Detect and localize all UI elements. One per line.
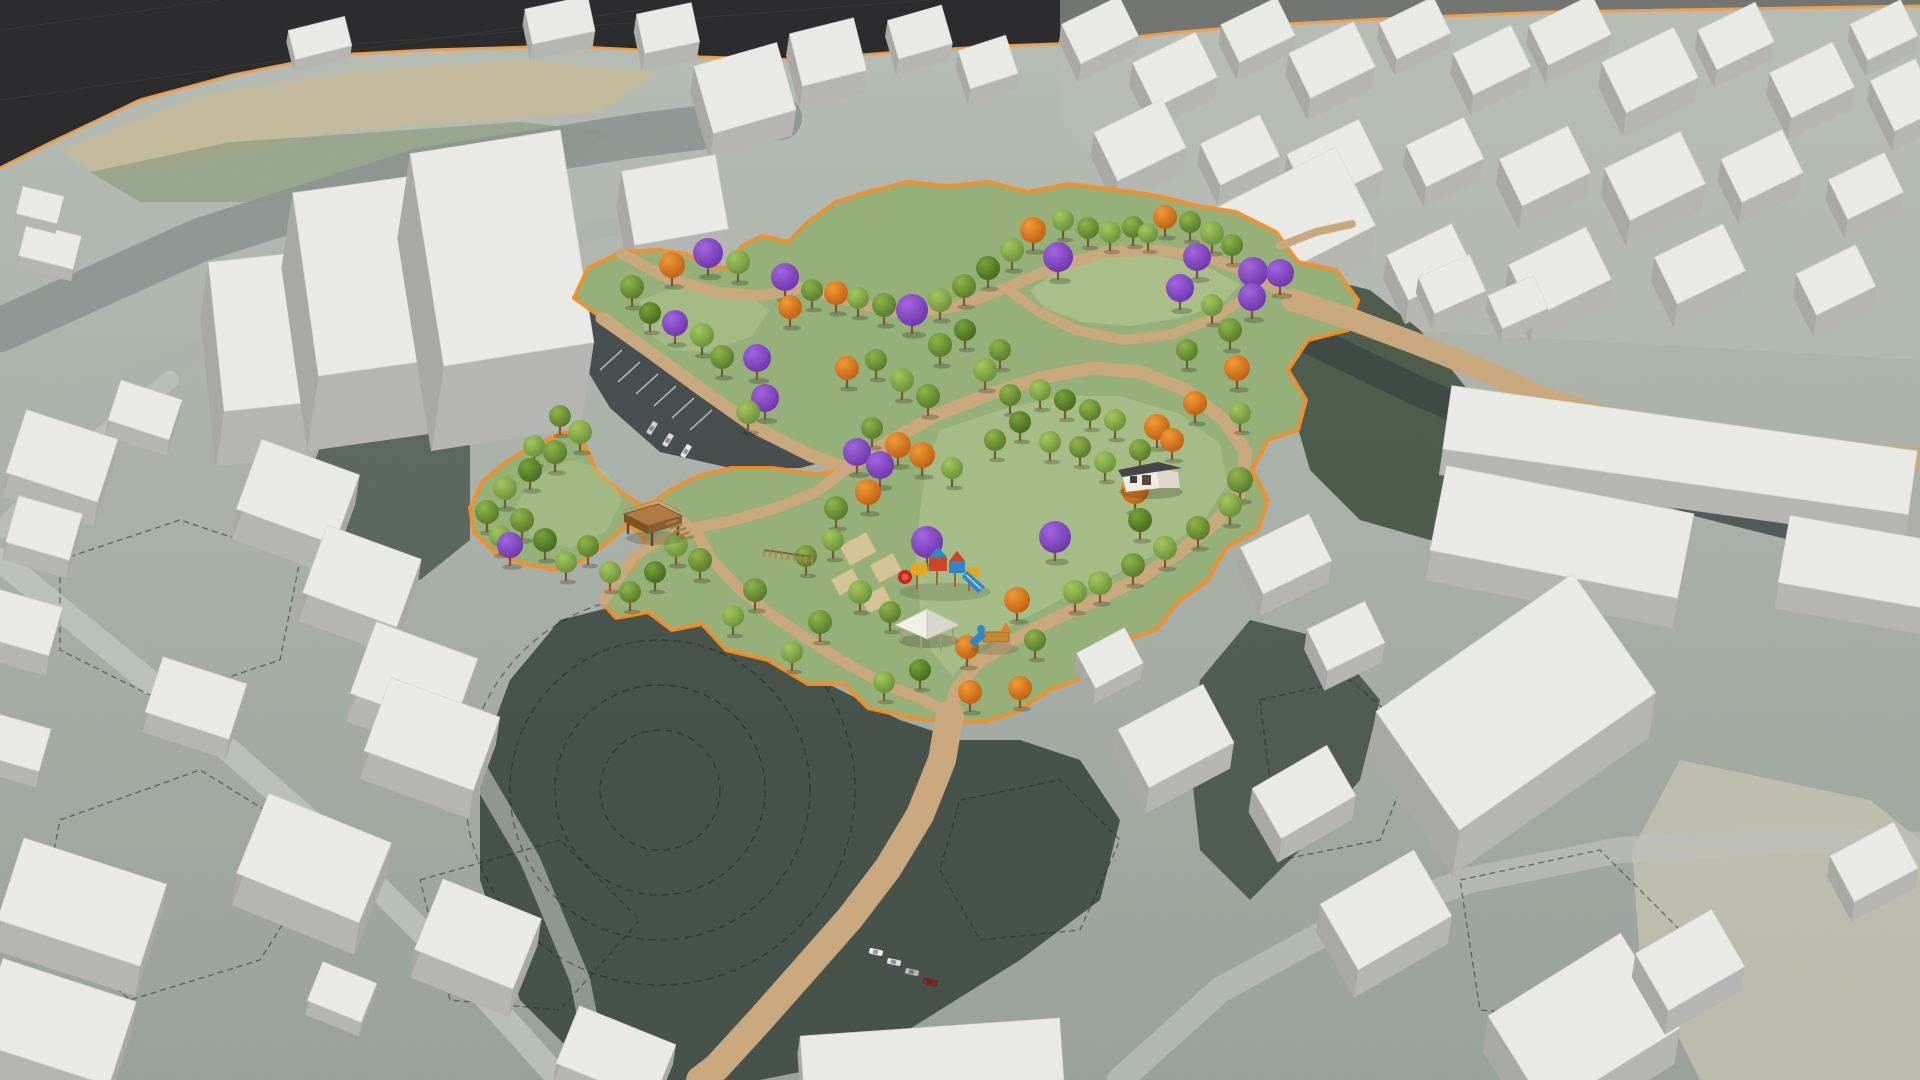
- scene-canvas[interactable]: [0, 0, 1920, 1080]
- viewport-3d[interactable]: [0, 0, 1920, 1080]
- building-mass[interactable]: [634, 3, 700, 72]
- building-mass[interactable]: [397, 130, 594, 451]
